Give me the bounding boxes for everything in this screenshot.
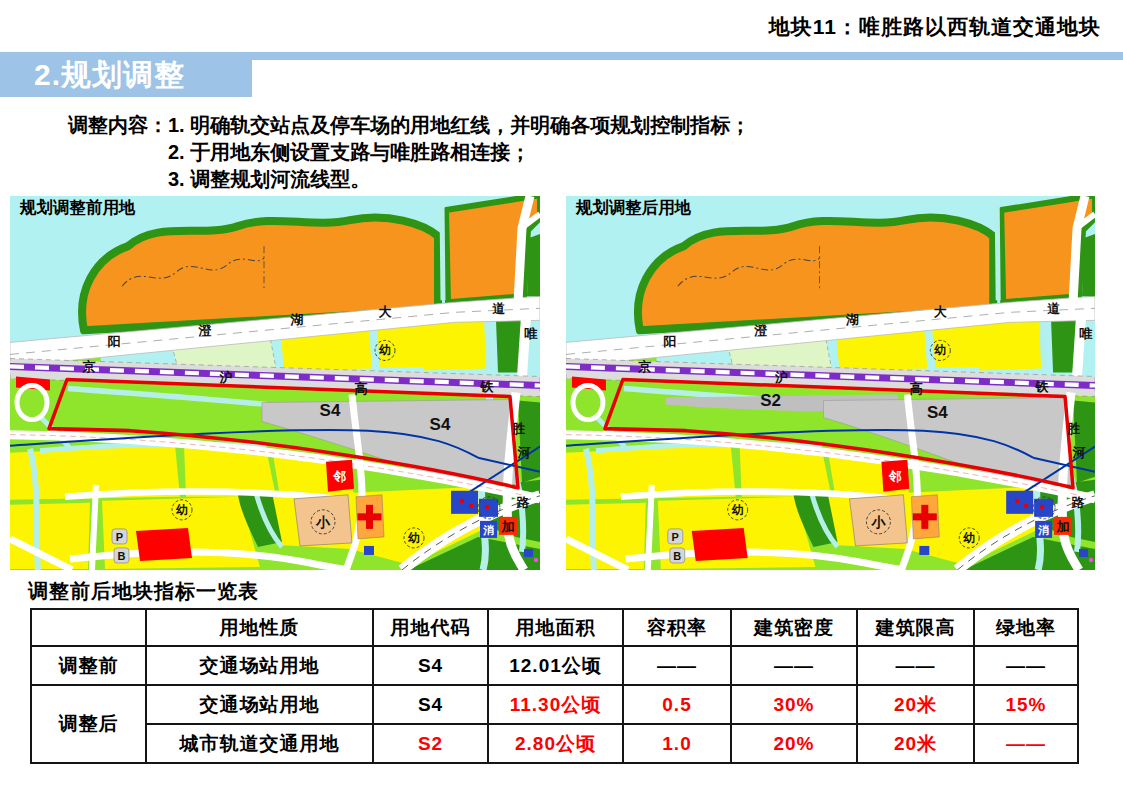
- gas-station-label: 加: [501, 519, 515, 534]
- indicators-table: 用地性质用地代码用地面积容积率建筑密度建筑限高绿地率调整前交通场站用地S412.…: [30, 608, 1079, 764]
- svg-text:幼: 幼: [732, 503, 744, 517]
- adjust-item: 2. 于用地东侧设置支路与唯胜路相连接；: [168, 139, 750, 166]
- avenue-label: 大: [934, 304, 948, 319]
- svg-text:幼: 幼: [934, 343, 946, 357]
- fire-station-label: 消: [1038, 524, 1049, 536]
- svg-text:幼: 幼: [408, 531, 420, 545]
- adjust-item: 1. 明确轨交站点及停车场的用地红线，并明确各项规划控制指标；: [168, 112, 750, 139]
- railway-label: 铁: [1035, 378, 1050, 393]
- table-row: 城市轨道交通用地S22.80公顷1.020%20米——: [31, 724, 1078, 763]
- table-header-cell: 绿地率: [974, 609, 1078, 646]
- table-header-cell: 容积率: [623, 609, 731, 646]
- table-header-cell: 用地代码: [373, 609, 488, 646]
- neighborhood-label: 邻: [333, 469, 347, 484]
- map-title: 规划调整后用地: [575, 198, 692, 216]
- table-row: 调整前交通场站用地S412.01公顷————————: [31, 646, 1078, 685]
- river-label: 河: [1072, 445, 1086, 460]
- table-cell: S2: [373, 724, 488, 763]
- page-title: 地块11：唯胜路以西轨道交通地块: [769, 13, 1101, 41]
- svg-text:幼: 幼: [963, 531, 975, 545]
- row-group-cell: 调整前: [31, 646, 146, 685]
- zone-label: S2: [760, 391, 781, 410]
- table-cell: ——: [974, 724, 1078, 763]
- row-group-cell: 调整后: [31, 685, 146, 763]
- table-cell: S4: [373, 646, 488, 685]
- table-row: 调整后交通场站用地S411.30公顷0.530%20米15%: [31, 685, 1078, 724]
- table-header-cell: 建筑限高: [857, 609, 974, 646]
- avenue-label: 阳: [108, 334, 121, 349]
- red-parcel-block: [692, 528, 748, 561]
- landuse-map: 邻 小 消 加 P B 幼幼幼 阳澄湖大道 唯 胜 路 河 京沪高铁 S2S4 …: [566, 196, 1095, 570]
- avenue-label: 大: [379, 304, 393, 319]
- utility-block: [1006, 491, 1033, 514]
- gas-station-label: 加: [1056, 519, 1070, 534]
- map-after-adjustment: 邻 小 消 加 P B 幼幼幼 阳澄湖大道 唯 胜 路 河 京沪高铁 S2S4 …: [566, 196, 1095, 570]
- section-header: 2.规划调整: [0, 52, 252, 97]
- railway-label: 高: [910, 380, 923, 395]
- table-header-cell: 用地面积: [488, 609, 623, 646]
- weisheng-label: 路: [1071, 495, 1086, 510]
- table-cell: 15%: [974, 685, 1078, 724]
- railway-label: 铁: [480, 379, 495, 394]
- table-cell: 20%: [731, 724, 857, 763]
- zone-label: S4: [430, 415, 451, 434]
- parking-label: P: [672, 531, 679, 543]
- avenue-label: 湖: [845, 312, 859, 327]
- table-cell: ——: [974, 646, 1078, 685]
- adjust-content: 调整内容： 1. 明确轨交站点及停车场的用地红线，并明确各项规划控制指标； 2.…: [68, 112, 750, 193]
- slide-page: 地块11：唯胜路以西轨道交通地块 2.规划调整 调整内容： 1. 明确轨交站点及…: [0, 0, 1123, 794]
- zone-label: S4: [927, 403, 948, 422]
- red-parcel-block: [136, 528, 192, 561]
- table-cell: 12.01公顷: [488, 646, 623, 685]
- neighborhood-label: 邻: [888, 469, 902, 484]
- railway-label: 高: [355, 381, 368, 396]
- avenue-label: 湖: [290, 312, 304, 327]
- weisheng-label: 唯: [525, 326, 538, 341]
- table-title: 调整前后地块指标一览表: [28, 578, 259, 605]
- table-cell: ——: [623, 646, 731, 685]
- adjust-content-items: 1. 明确轨交站点及停车场的用地红线，并明确各项规划控制指标； 2. 于用地东侧…: [168, 112, 750, 193]
- table-cell: 20米: [857, 685, 974, 724]
- avenue-label: 澄: [198, 323, 213, 338]
- table-cell: 1.0: [623, 724, 731, 763]
- railway-label: 京: [82, 359, 96, 374]
- fire-station-label: 消: [483, 524, 494, 536]
- primary-school-label: 小: [870, 514, 886, 530]
- utility-block: [451, 491, 478, 514]
- avenue-label: 阳: [663, 334, 676, 349]
- adjust-item: 3. 调整规划河流线型。: [168, 166, 750, 193]
- table-cell: ——: [731, 646, 857, 685]
- table-cell: 30%: [731, 685, 857, 724]
- map-title: 规划调整前用地: [19, 198, 136, 217]
- table-cell: 城市轨道交通用地: [146, 724, 373, 763]
- table-header-cell: [31, 609, 146, 646]
- river-label: 河: [517, 445, 531, 460]
- table-cell: 11.30公顷: [488, 685, 623, 724]
- map-before-adjustment: 邻 小 消 加 P B 幼幼幼 阳澄湖大道 唯 胜 路 河 京沪高铁 S4S4 …: [10, 196, 540, 570]
- railway-label: 京: [637, 359, 651, 374]
- weisheng-label: 路: [516, 495, 531, 510]
- adjust-content-label: 调整内容：: [68, 112, 168, 193]
- table-cell: 20米: [857, 724, 974, 763]
- table-cell: 交通场站用地: [146, 685, 373, 724]
- table-cell: 2.80公顷: [488, 724, 623, 763]
- table-header-cell: 建筑密度: [731, 609, 857, 646]
- landuse-map: 邻 小 消 加 P B 幼幼幼 阳澄湖大道 唯 胜 路 河 京沪高铁 S4S4 …: [10, 196, 540, 570]
- railway-label: 沪: [219, 370, 233, 385]
- zone-label: S4: [320, 401, 341, 420]
- bus-label: B: [118, 550, 126, 562]
- avenue-label: 道: [1047, 301, 1061, 316]
- weisheng-label: 胜: [512, 421, 526, 436]
- weisheng-label: 唯: [1080, 326, 1093, 341]
- table-cell: 交通场站用地: [146, 646, 373, 685]
- railway-label: 沪: [774, 370, 788, 385]
- table-header-cell: 用地性质: [146, 609, 373, 646]
- primary-school-label: 小: [315, 514, 331, 530]
- parking-label: P: [116, 531, 123, 543]
- table-cell: ——: [857, 646, 974, 685]
- table-cell: 0.5: [623, 685, 731, 724]
- svg-text:幼: 幼: [176, 503, 188, 517]
- weisheng-label: 胜: [1067, 421, 1081, 436]
- svg-text:幼: 幼: [379, 343, 391, 357]
- avenue-label: 澄: [753, 323, 768, 338]
- table-cell: S4: [373, 685, 488, 724]
- avenue-label: 道: [492, 301, 506, 316]
- bus-label: B: [673, 550, 681, 562]
